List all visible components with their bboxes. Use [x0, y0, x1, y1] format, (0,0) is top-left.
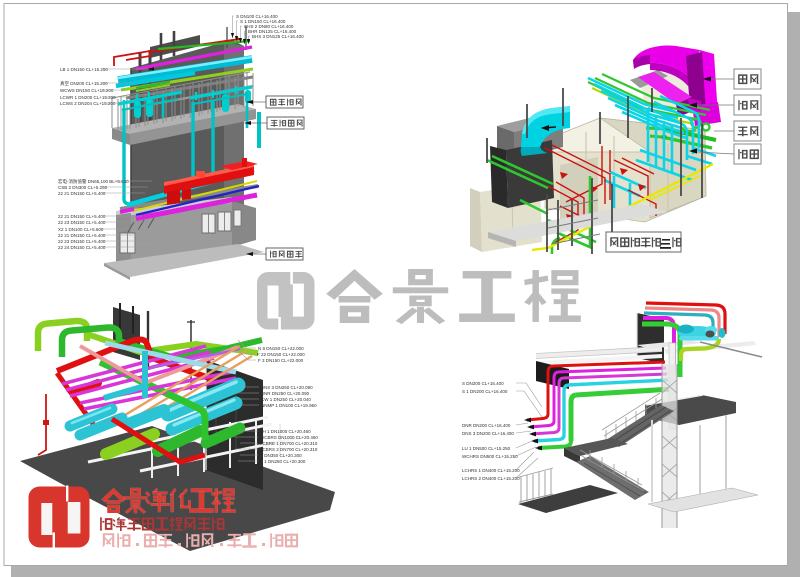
svg-text:DNS 3 DN200 CL+16.400: DNS 3 DN200 CL+16.400 — [462, 431, 514, 436]
svg-text:宏电-消防值警 DN65,100 BL+5.650: 宏电-消防值警 DN65,100 BL+5.650 — [58, 178, 129, 185]
svg-text:LH 1 DN1000 CL+20.460: LH 1 DN1000 CL+20.460 — [260, 429, 311, 434]
svg-text:LCHRS 2 DN400 CL+15.200: LCHRS 2 DN400 CL+15.200 — [462, 476, 520, 481]
svg-text:CSB 2 DN300 CL+5.250: CSB 2 DN300 CL+5.250 — [58, 185, 108, 190]
svg-text:NNMP 1 DN100 CL+19.960: NNMP 1 DN100 CL+19.960 — [261, 403, 317, 408]
svg-text:22 21 DN150 CL+5.400: 22 21 DN150 CL+5.400 — [58, 191, 106, 196]
svg-text:真空 DN200 CL+15.200: 真空 DN200 CL+15.200 — [60, 80, 108, 87]
svg-text:BNS 3 DN250 CL+20.090: BNS 3 DN250 CL+20.090 — [261, 385, 313, 390]
svg-text:CW 1 DN250 CL+20.040: CW 1 DN250 CL+20.040 — [261, 397, 311, 402]
svg-text:BHS 3 DN125 CL+16.400: BHS 3 DN125 CL+16.400 — [252, 34, 304, 39]
svg-text:WCWS DN150 CL+15.200: WCWS DN150 CL+15.200 — [60, 88, 114, 93]
svg-text:X2 1 DN100 CL+5.600: X2 1 DN100 CL+5.600 — [58, 227, 104, 232]
svg-text:LCBRE 1 DN700 CL+20.310: LCBRE 1 DN700 CL+20.310 — [260, 441, 318, 446]
svg-text:WCBRS DN1000 CL+20.460: WCBRS DN1000 CL+20.460 — [260, 435, 318, 440]
svg-text:22 21 DN150 CL+5.400: 22 21 DN150 CL+5.400 — [58, 233, 106, 238]
svg-text:LCWR 1 DN200 CL+15.200: LCWR 1 DN200 CL+15.200 — [60, 95, 116, 100]
svg-text:DNR DN200 CL+16.400: DNR DN200 CL+16.400 — [462, 423, 511, 428]
svg-text:LCHRS 1 DN400 CL+15.200: LCHRS 1 DN400 CL+15.200 — [462, 468, 520, 473]
svg-text:BNR DN250 CL+20.090: BNR DN250 CL+20.090 — [261, 391, 310, 396]
svg-text:LCWS 2 DN204 CL+15.200: LCWS 2 DN204 CL+15.200 — [60, 101, 116, 106]
svg-text:WCHRS DN500 CL+15.250: WCHRS DN500 CL+15.250 — [462, 454, 518, 459]
svg-text:22 21 DN150 CL+5.400: 22 21 DN150 CL+5.400 — [58, 214, 106, 219]
svg-text:S 1 DN250 CL+20.300: S 1 DN250 CL+20.300 — [260, 459, 306, 464]
svg-text:F 3 DN150 CL+22.000: F 3 DN150 CL+22.000 — [258, 358, 304, 363]
svg-text:S DN200 CL+16.400: S DN200 CL+16.400 — [462, 381, 504, 386]
svg-text:F 22 DN150 CL+22.000: F 22 DN150 CL+22.000 — [257, 352, 305, 357]
svg-text:LU 1 DN500 CL+15.250: LU 1 DN500 CL+15.250 — [462, 446, 511, 451]
svg-text:22 24 DN150 CL+5.400: 22 24 DN150 CL+5.400 — [58, 245, 106, 250]
svg-text:S 1 DN200 CL+16.400: S 1 DN200 CL+16.400 — [462, 389, 508, 394]
svg-text:22 23 DN150 CL+5.400: 22 23 DN150 CL+5.400 — [58, 239, 106, 244]
svg-text:LB 1 DN150 CL+15.250: LB 1 DN150 CL+15.250 — [60, 67, 108, 72]
svg-text:S DN350 CL+20.300: S DN350 CL+20.300 — [260, 453, 302, 458]
svg-text:LCBRS 2 DN700 CL+20.310: LCBRS 2 DN700 CL+20.310 — [260, 447, 318, 452]
svg-text:22 23 DN150 CL+5.400: 22 23 DN150 CL+5.400 — [58, 220, 106, 225]
svg-text:N 9 DN150 CL+22.000: N 9 DN150 CL+22.000 — [258, 346, 304, 351]
